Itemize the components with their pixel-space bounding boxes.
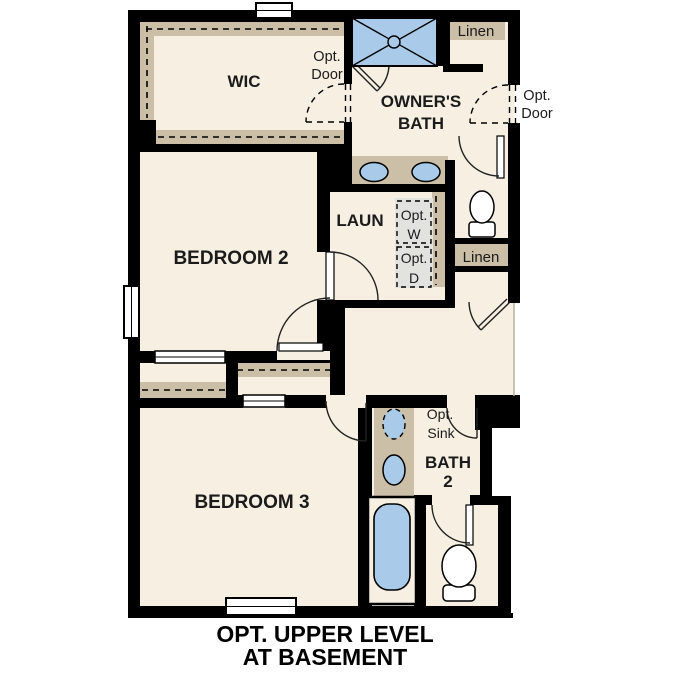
owners-bath-label-2: BATH	[398, 114, 444, 133]
laundry-door-leaf	[326, 252, 334, 300]
wall-segment	[508, 10, 520, 85]
bedroom2-label: BEDROOM 2	[173, 248, 288, 269]
owners-bath-label-1: OWNER'S	[381, 92, 462, 111]
laundry-wall-strip	[432, 192, 445, 287]
bathtub	[368, 497, 416, 604]
toilet	[442, 545, 476, 601]
floor-plan-drawing: WIC Opt. Door Linen OWNER'S BATH Opt. Do…	[0, 0, 687, 687]
toilet-tank	[469, 222, 495, 237]
exterior-patch	[492, 428, 522, 496]
wall-segment	[445, 238, 512, 244]
opt-sink-label-2: Sink	[427, 425, 455, 441]
wall-segment	[345, 300, 455, 308]
wall-segment	[128, 351, 155, 363]
wall-segment	[498, 495, 512, 608]
wall-segment	[445, 160, 455, 306]
wall-segment	[508, 123, 520, 303]
wall-segment	[443, 64, 483, 72]
wall-segment	[480, 397, 492, 500]
wall-segment	[330, 351, 345, 395]
wall-segment	[128, 398, 228, 408]
opt-dryer-label-2: D	[409, 270, 419, 286]
opt-sink-label-1: Opt.	[427, 406, 453, 422]
opt-washer-label-2: W	[407, 226, 421, 242]
toilet-bowl	[442, 545, 476, 587]
floor-plan-page: WIC Opt. Door Linen OWNER'S BATH Opt. Do…	[0, 0, 687, 687]
linen-mid-label: Linen	[463, 249, 500, 266]
wall-segment	[285, 395, 326, 408]
wall-segment	[352, 184, 455, 192]
opt-door-wic-label-2: Door	[311, 67, 343, 83]
shower	[352, 18, 437, 66]
wall-segment	[236, 395, 243, 408]
wall-segment	[330, 300, 345, 351]
opt-washer-label-1: Opt.	[401, 207, 427, 223]
laundry-label: LAUN	[336, 211, 383, 230]
wall-segment	[470, 495, 512, 505]
opt-dryer-label-1: Opt.	[401, 250, 427, 266]
wc-door-leaf	[497, 136, 504, 178]
optional-sink	[383, 409, 405, 439]
wall-segment	[317, 144, 352, 192]
plan-caption-line2: AT BASEMENT	[243, 644, 407, 670]
shower-drain	[388, 36, 400, 48]
bath2-label-1: BATH	[425, 453, 471, 472]
linen-top-label: Linen	[458, 23, 495, 40]
sink	[383, 455, 405, 485]
bedroom3-label: BEDROOM 3	[194, 492, 309, 513]
wic-label: WIC	[227, 72, 260, 91]
wall-segment	[128, 10, 520, 22]
toilet-room-door-leaf	[466, 505, 473, 545]
tub-basin	[374, 504, 410, 590]
opt-door-bath-label-1: Opt.	[523, 88, 550, 104]
wall-segment	[238, 360, 333, 363]
wall-segment	[445, 266, 512, 272]
toilet-bowl	[470, 191, 494, 223]
sink	[360, 163, 388, 182]
wall-segment	[317, 192, 330, 252]
opt-door-wic-label-1: Opt.	[313, 49, 340, 65]
wall-segment	[128, 120, 156, 147]
wall-segment	[344, 10, 352, 84]
wall-segment	[437, 10, 450, 66]
opt-door-bath-label-2: Door	[521, 106, 553, 122]
wall-segment	[128, 606, 513, 618]
sink	[412, 163, 440, 182]
exterior-patch	[511, 493, 520, 613]
bedroom2-door-leaf	[279, 343, 323, 351]
bath2-label-2: 2	[443, 472, 452, 491]
toilet	[469, 191, 495, 237]
